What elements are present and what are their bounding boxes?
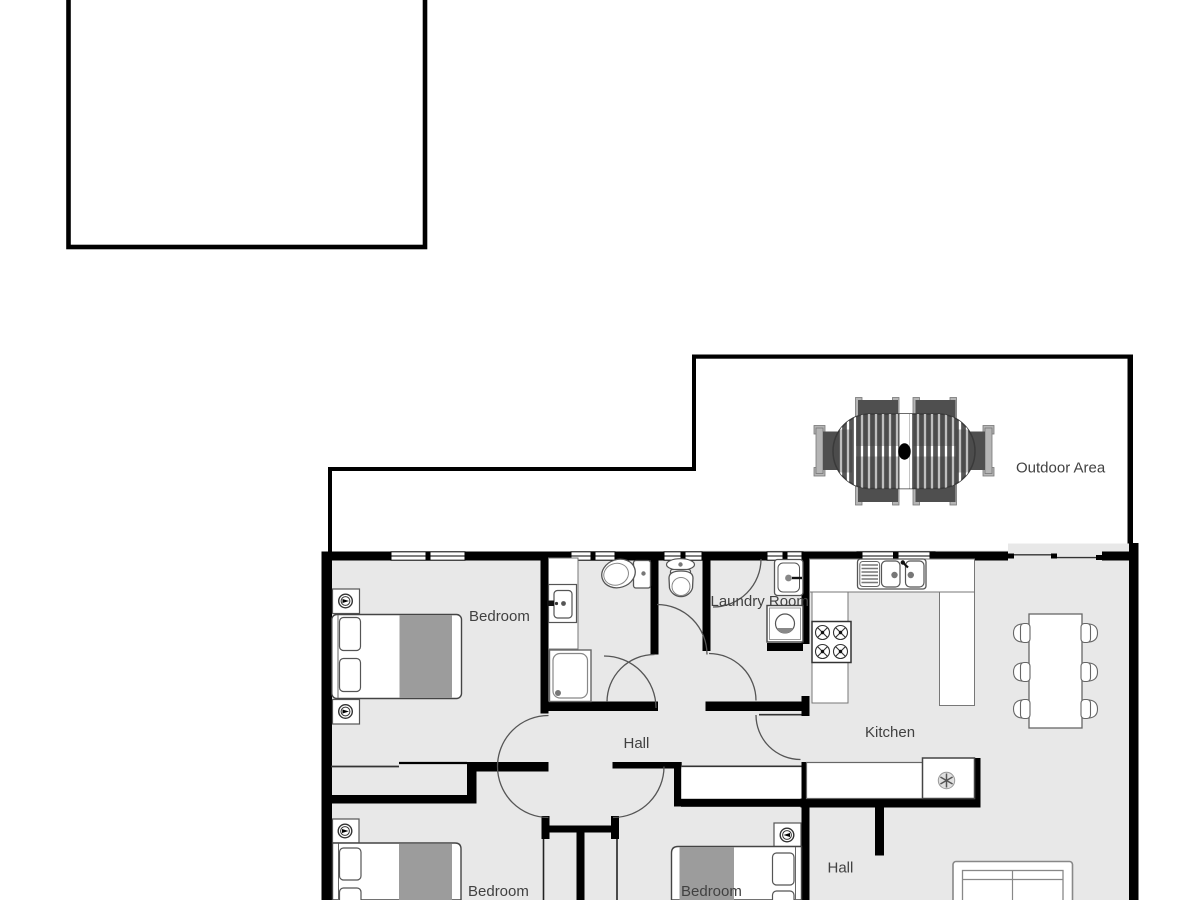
svg-text:Kitchen: Kitchen xyxy=(865,724,915,741)
svg-text:Hall: Hall xyxy=(828,860,854,877)
svg-text:Bedroom: Bedroom xyxy=(468,883,529,900)
svg-text:Outdoor Area: Outdoor Area xyxy=(1016,460,1106,477)
svg-text:Bedroom: Bedroom xyxy=(469,608,530,625)
svg-text:Laundry Room: Laundry Room xyxy=(711,593,809,610)
svg-text:Bedroom: Bedroom xyxy=(681,883,742,900)
svg-text:Hall: Hall xyxy=(624,735,650,752)
